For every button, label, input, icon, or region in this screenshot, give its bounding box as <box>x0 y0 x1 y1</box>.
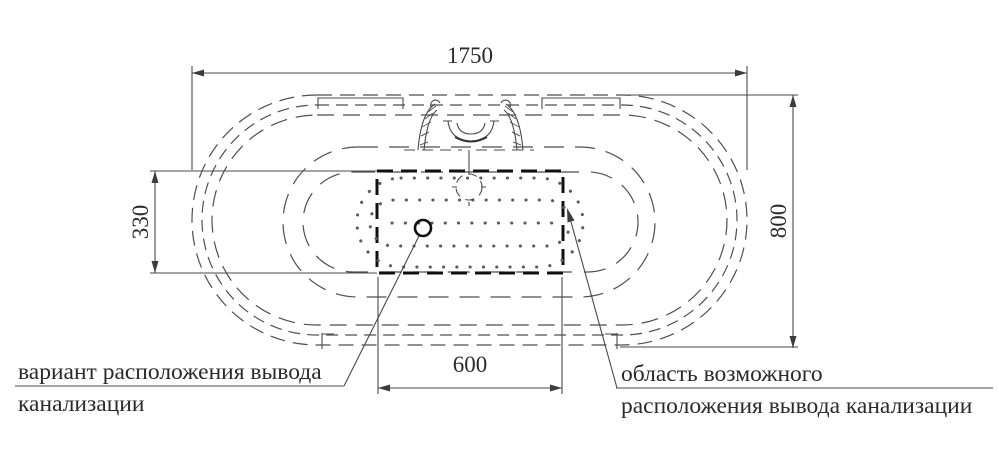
arrowhead-right <box>735 70 747 77</box>
dot-ring-middle <box>370 200 570 246</box>
bowl-floor-contour <box>303 172 638 272</box>
leader-line <box>568 211 617 388</box>
arrowhead-top <box>790 95 797 107</box>
faucet-left-grip <box>418 100 440 150</box>
rim-contour-outer <box>192 95 747 345</box>
arrowhead-bottom <box>790 336 797 348</box>
arrowhead-top <box>152 171 159 183</box>
arrowhead-left <box>192 70 204 77</box>
outlet-variant-circle <box>415 220 431 236</box>
area-label-line1: область возможного <box>621 361 823 387</box>
rim-tab-top-right <box>542 98 620 109</box>
dimension-330-value: 330 <box>128 205 153 240</box>
technical-drawing: 1750 800 330 600 вариант расположения вы… <box>0 0 999 460</box>
faucet-right-grip <box>501 100 523 150</box>
arrowhead-left <box>378 385 390 392</box>
area-label-line2: расположения вывода канализации <box>621 393 973 419</box>
rim-contour-middle <box>202 105 737 335</box>
leader-line <box>344 236 419 386</box>
outlet-area-callout: область возможного расположения вывода к… <box>567 208 993 419</box>
arrowhead-bottom <box>152 261 159 273</box>
rim-tabs <box>318 98 620 349</box>
outlet-area-dot-pattern <box>357 178 583 267</box>
faucet-group <box>404 100 534 174</box>
dimension-330: 330 <box>128 171 377 273</box>
dimension-800-value: 800 <box>766 204 791 239</box>
tub-rim-contours <box>192 95 747 345</box>
variant-outlet-callout: вариант расположения вывода канализации <box>15 236 419 417</box>
bathtub-diagram-svg: 1750 800 330 600 вариант расположения вы… <box>0 0 999 460</box>
variant-label-line2: канализации <box>18 391 145 417</box>
arrowhead-right <box>550 385 562 392</box>
leader-arrowhead <box>567 208 575 223</box>
variant-label-line1: вариант расположения вывода <box>18 359 322 385</box>
faucet-spout <box>443 121 499 142</box>
rim-tab-top-left <box>318 98 403 109</box>
dimension-1750-value: 1750 <box>447 43 493 68</box>
dimension-600-value: 600 <box>453 352 488 377</box>
